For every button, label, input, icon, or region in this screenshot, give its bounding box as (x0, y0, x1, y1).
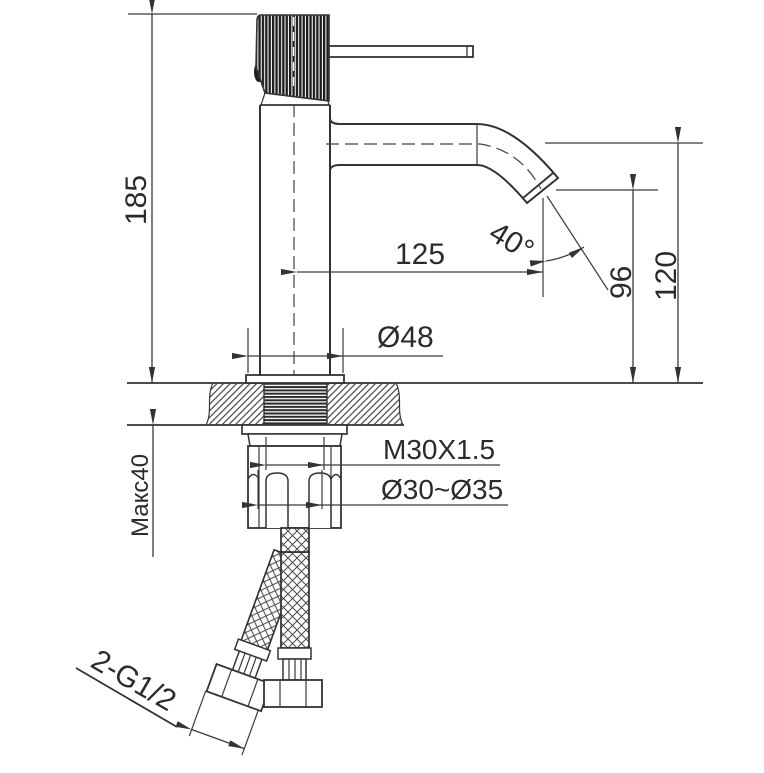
dim-hose-connection: 2-G1/2 (76, 643, 181, 727)
counter-hatch-left (206, 383, 264, 425)
hose-nut-vertical (264, 680, 322, 707)
dim-label-d30-d35: Ø30~Ø35 (381, 474, 503, 505)
handle-lever (329, 46, 473, 57)
dim-label-maks40: Макс40 (127, 454, 154, 537)
mounting-taper (248, 434, 342, 446)
dim-base-diameter: Ø48 (248, 321, 443, 373)
dim-label-m30x15: M30X1.5 (383, 434, 495, 465)
dim-label-96: 96 (605, 266, 638, 299)
dim-outlet-height: 96 (556, 190, 658, 383)
hose-crimp (281, 528, 309, 552)
technical-drawing-page: 185 Макс40 125 40° 96 120 (0, 0, 764, 773)
dim-label-185: 185 (120, 175, 153, 225)
base-flange (246, 375, 344, 383)
mounting-nut (248, 446, 341, 528)
mounting-washer (242, 425, 347, 434)
dim-max-deck-thickness: Макс40 (127, 425, 154, 557)
counter-hatch-right (327, 383, 403, 425)
dim-label-d48: Ø48 (377, 321, 434, 354)
faucet-technical-drawing: 185 Макс40 125 40° 96 120 (0, 0, 764, 773)
spout (326, 119, 558, 203)
faucet-body (260, 105, 330, 376)
dim-label-120: 120 (650, 251, 683, 301)
dim-label-125: 125 (395, 238, 445, 271)
handle-knob (256, 15, 329, 101)
dimensions: 185 Макс40 125 40° 96 120 (76, 14, 703, 727)
dim-spout-angle: 40° (483, 196, 608, 290)
threaded-shank (264, 383, 327, 425)
dim-label-40deg: 40° (483, 216, 539, 268)
supply-hoses (189, 528, 322, 756)
dim-label-2g12: 2-G1/2 (86, 643, 182, 717)
countertop-section (127, 383, 703, 425)
dim-overall-height: 185 (120, 14, 257, 383)
g12-dim-line (192, 729, 245, 748)
dim-spout-centerline-height: 120 (545, 143, 703, 383)
